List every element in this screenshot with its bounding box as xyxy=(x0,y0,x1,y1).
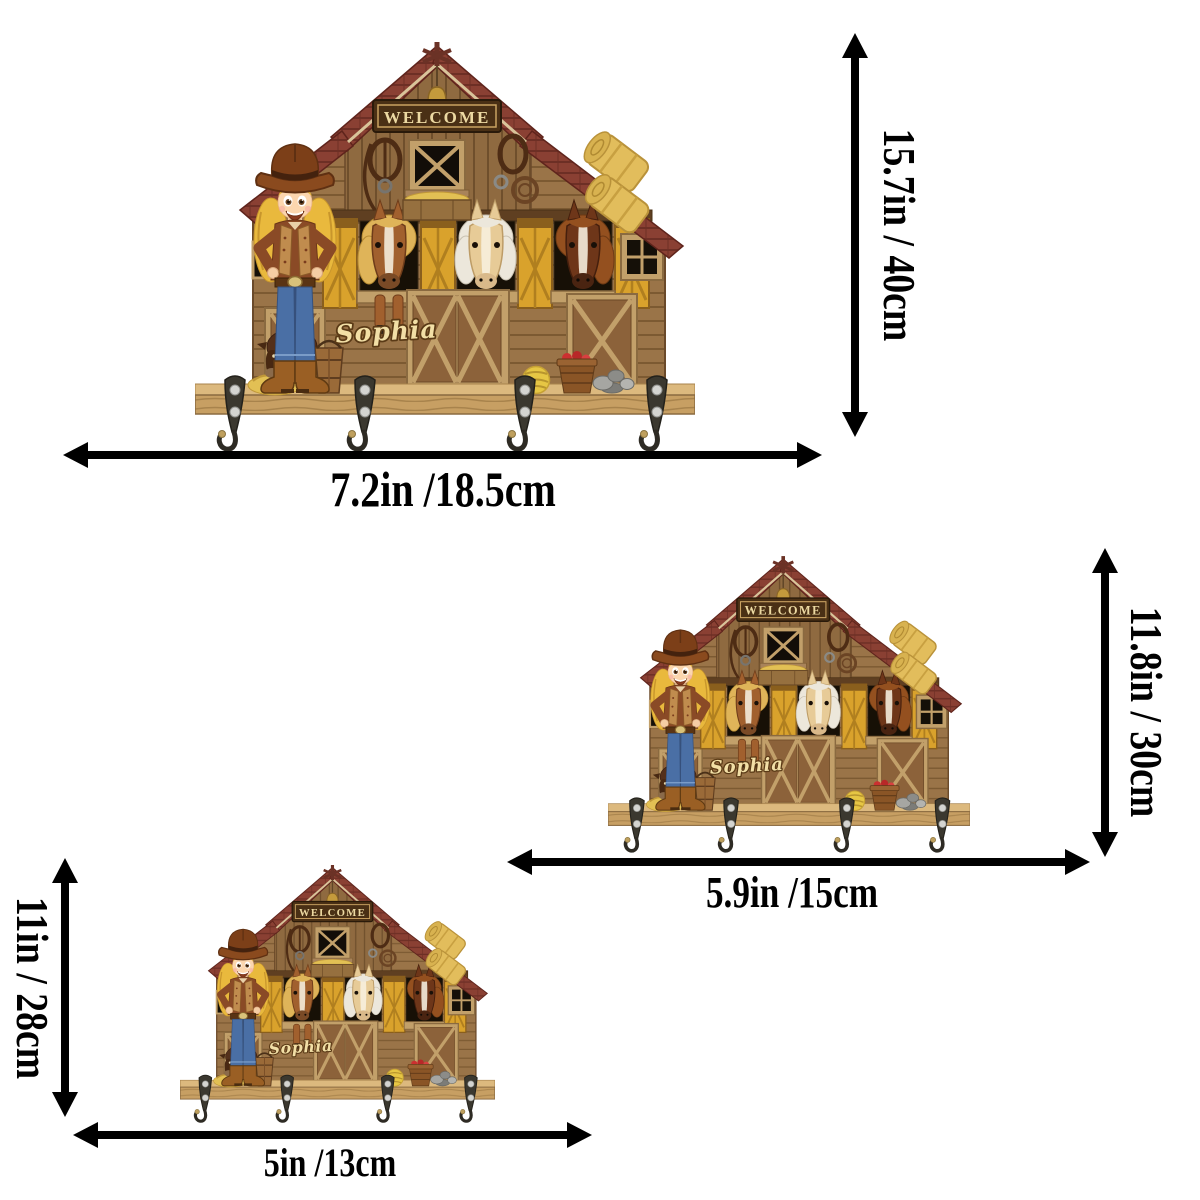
height-arrow-large xyxy=(842,33,868,437)
width-label-medium: 5.9in /15cm xyxy=(706,871,878,915)
arrowhead-down-icon xyxy=(52,1092,78,1117)
height-label-small: 11in / 28cm xyxy=(9,897,55,1079)
height-label-large: 15.7in / 40cm xyxy=(876,129,922,342)
size-chart: WELCOME xyxy=(0,0,1200,1200)
arrow-shaft xyxy=(85,1131,580,1139)
arrowhead-right-icon xyxy=(567,1122,592,1148)
width-label-small: 5in /13cm xyxy=(264,1143,396,1183)
arrow-shaft xyxy=(1101,560,1109,845)
height-arrow-medium xyxy=(1092,548,1118,857)
width-label-large: 7.2in /18.5cm xyxy=(330,464,556,514)
barn-hook-medium xyxy=(608,556,970,853)
arrowhead-right-icon xyxy=(1065,849,1090,875)
arrowhead-down-icon xyxy=(1092,832,1118,857)
height-label-medium: 11.8in / 30cm xyxy=(1123,607,1169,818)
arrowhead-right-icon xyxy=(797,442,822,468)
barn-hook-small xyxy=(180,865,495,1123)
arrow-shaft xyxy=(61,870,69,1105)
arrowhead-down-icon xyxy=(842,412,868,437)
arrow-shaft xyxy=(851,45,859,425)
arrow-shaft xyxy=(75,451,810,459)
arrow-shaft xyxy=(519,858,1078,866)
barn-hook-large xyxy=(195,42,695,452)
